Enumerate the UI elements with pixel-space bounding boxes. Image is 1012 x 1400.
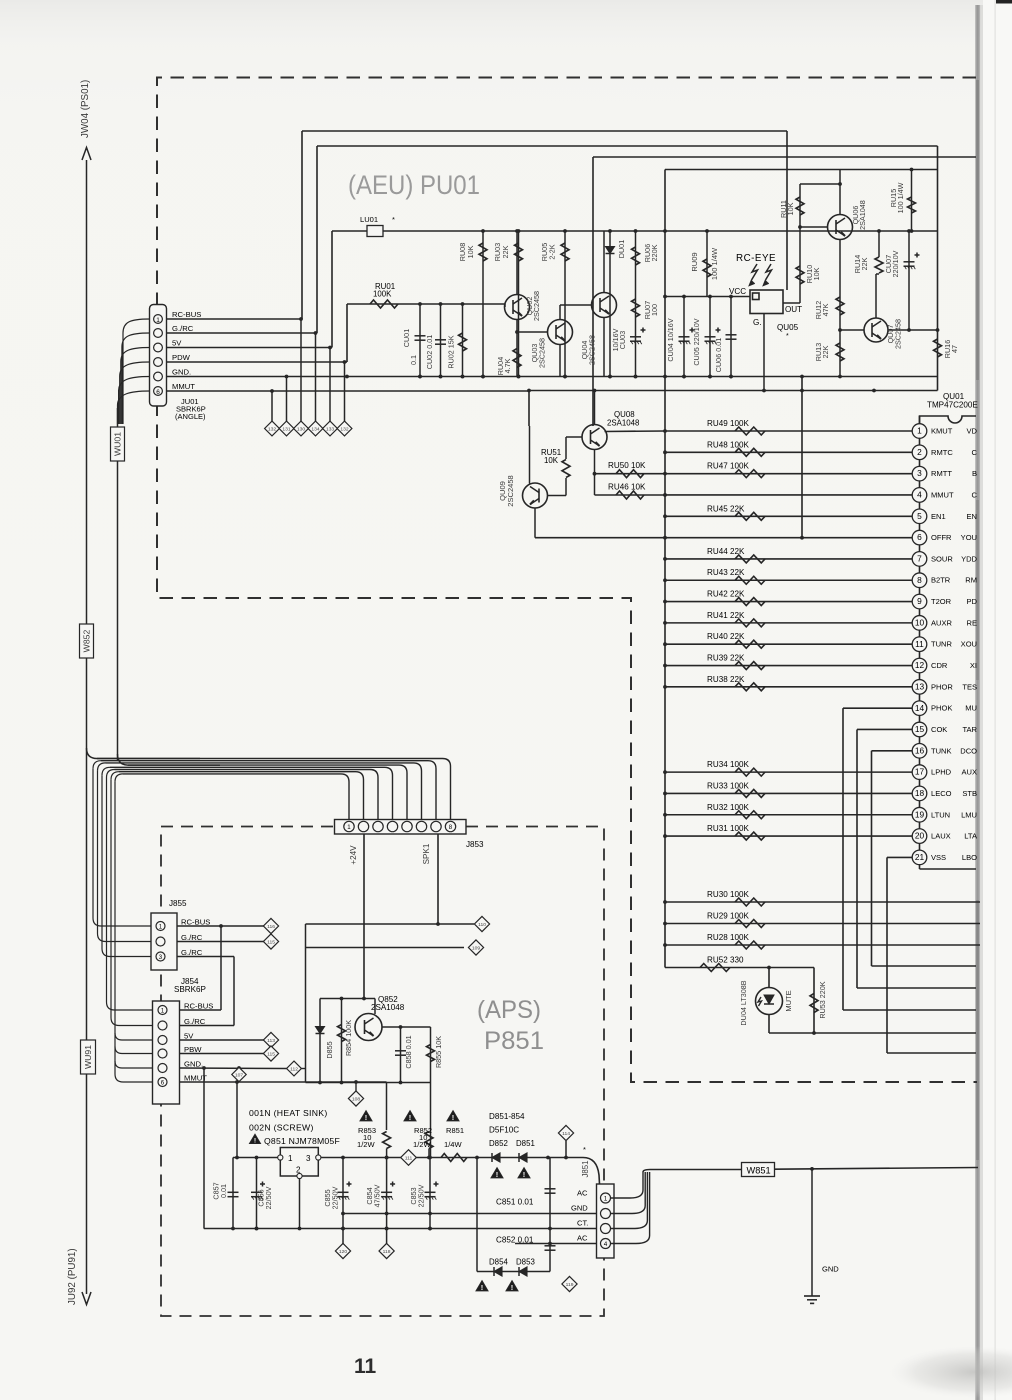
svg-text:RU38 22K: RU38 22K — [707, 675, 745, 684]
svg-text:CU05 220/10V: CU05 220/10V — [692, 318, 701, 365]
svg-text:R851: R851 — [446, 1126, 464, 1135]
svg-text:RU49 100K: RU49 100K — [707, 419, 749, 428]
svg-text:EN: EN — [967, 512, 977, 521]
svg-text:134: 134 — [311, 426, 319, 432]
svg-text:EN1: EN1 — [931, 512, 946, 521]
svg-text:4.7K: 4.7K — [503, 358, 512, 373]
svg-text:RU47 100K: RU47 100K — [707, 462, 749, 471]
svg-text:!: ! — [481, 1283, 483, 1292]
svg-text:3: 3 — [306, 1154, 311, 1163]
svg-text:J855: J855 — [169, 899, 187, 908]
svg-text:J853: J853 — [466, 840, 484, 849]
svg-text:14: 14 — [915, 703, 925, 713]
svg-text:20: 20 — [915, 831, 925, 841]
svg-text:PHOR: PHOR — [931, 682, 953, 691]
svg-text:!: ! — [496, 1170, 498, 1179]
svg-text:21: 21 — [915, 852, 925, 862]
svg-text:RU29 100K: RU29 100K — [707, 912, 749, 921]
svg-text:LECO: LECO — [931, 789, 952, 798]
svg-text:G.: G. — [753, 318, 762, 327]
svg-text:VCC: VCC — [729, 287, 746, 296]
svg-text:(ANGLE): (ANGLE) — [175, 412, 206, 421]
svg-text:120: 120 — [339, 1249, 347, 1255]
svg-text:!: ! — [409, 1113, 411, 1122]
svg-text:5: 5 — [917, 511, 922, 521]
svg-text:RC-EYE: RC-EYE — [736, 253, 776, 264]
svg-text:1/2W: 1/2W — [413, 1140, 431, 1149]
svg-text:18: 18 — [915, 788, 925, 798]
svg-text:GND: GND — [822, 1265, 839, 1274]
svg-text:47: 47 — [950, 345, 959, 353]
svg-text:4: 4 — [917, 490, 922, 500]
svg-text:CDR: CDR — [931, 661, 948, 670]
svg-text:112: 112 — [290, 1066, 298, 1072]
svg-text:COK: COK — [931, 725, 947, 734]
svg-text:RU50 10K: RU50 10K — [608, 461, 646, 470]
svg-text:002N (SCREW): 002N (SCREW) — [249, 1123, 314, 1133]
svg-text:LMU: LMU — [961, 810, 977, 819]
svg-text:TES: TES — [962, 682, 977, 691]
svg-text:DU04 LT308B: DU04 LT308B — [739, 980, 748, 1025]
svg-text:6: 6 — [156, 389, 160, 396]
svg-text:1/4W: 1/4W — [444, 1140, 462, 1149]
svg-text:2SC2458: 2SC2458 — [538, 338, 547, 368]
svg-text:SBRK6P: SBRK6P — [174, 985, 206, 994]
svg-text:RC-BUS: RC-BUS — [184, 1002, 213, 1011]
svg-text:YDD: YDD — [961, 554, 977, 563]
svg-text:1/2W: 1/2W — [357, 1140, 375, 1149]
svg-text:113: 113 — [267, 1038, 275, 1044]
svg-text:TUNK: TUNK — [931, 746, 952, 755]
svg-text:AC: AC — [577, 1189, 588, 1198]
svg-text:B: B — [972, 469, 977, 478]
svg-text:1: 1 — [917, 426, 922, 436]
svg-text:XOU: XOU — [961, 640, 977, 649]
svg-text:001N (HEAT SINK): 001N (HEAT SINK) — [249, 1108, 328, 1118]
svg-text:2SA1048: 2SA1048 — [371, 1003, 405, 1012]
svg-text:RU45 22K: RU45 22K — [707, 504, 745, 513]
svg-text:GND: GND — [571, 1204, 588, 1213]
svg-text:107: 107 — [235, 1072, 243, 1078]
svg-text:G./RC: G./RC — [184, 1017, 206, 1026]
svg-text:Q851 NJM78M05F: Q851 NJM78M05F — [264, 1136, 340, 1146]
svg-text:6: 6 — [917, 532, 922, 542]
svg-text:5V: 5V — [172, 339, 182, 348]
svg-text:WU91: WU91 — [83, 1045, 93, 1069]
svg-text:TMP47C200E: TMP47C200E — [927, 401, 978, 410]
svg-text:*: * — [583, 1145, 586, 1154]
svg-text:LU01: LU01 — [360, 215, 378, 224]
svg-text:RU41 22K: RU41 22K — [707, 611, 745, 620]
svg-text:DCO: DCO — [960, 746, 977, 755]
svg-text:MUTE: MUTE — [784, 990, 793, 1011]
svg-text:22/50V: 22/50V — [417, 1184, 426, 1207]
svg-text:2: 2 — [296, 1166, 301, 1175]
svg-text:15: 15 — [915, 724, 925, 734]
svg-text:116: 116 — [267, 924, 275, 930]
svg-text:JW04 (PS01): JW04 (PS01) — [80, 80, 91, 138]
svg-text:119: 119 — [566, 1282, 574, 1288]
svg-text:D854: D854 — [489, 1258, 508, 1267]
svg-text:GND.: GND. — [184, 1060, 203, 1069]
svg-text:2SC2458: 2SC2458 — [532, 291, 541, 321]
svg-text:2: 2 — [917, 447, 922, 457]
svg-text:109: 109 — [472, 945, 480, 951]
svg-text:RC-BUS: RC-BUS — [181, 918, 210, 927]
svg-text:132: 132 — [340, 426, 348, 432]
svg-text:133: 133 — [326, 426, 334, 432]
svg-text:R855 10K: R855 10K — [434, 1036, 443, 1068]
svg-text:*: * — [392, 215, 395, 224]
svg-text:0.1: 0.1 — [409, 355, 418, 365]
svg-text:*: * — [786, 333, 789, 340]
svg-text:RU30 100K: RU30 100K — [707, 890, 749, 899]
svg-text:VSS: VSS — [931, 853, 946, 862]
svg-text:22K: 22K — [860, 257, 869, 270]
svg-text:CT.: CT. — [577, 1219, 588, 1228]
svg-text:22K: 22K — [821, 345, 830, 358]
svg-text:JU92 (PU91): JU92 (PU91) — [67, 1248, 78, 1305]
svg-text:W851: W851 — [747, 1166, 771, 1176]
svg-text:!: ! — [254, 1138, 256, 1145]
svg-text:RU46 10K: RU46 10K — [608, 483, 646, 492]
svg-text:GND.: GND. — [172, 368, 191, 377]
svg-text:111: 111 — [405, 1155, 413, 1161]
svg-text:AC: AC — [577, 1234, 588, 1243]
svg-text:CU01: CU01 — [402, 329, 411, 347]
svg-text:RU40 22K: RU40 22K — [707, 632, 745, 641]
svg-text:C858 0.01: C858 0.01 — [404, 1035, 413, 1068]
svg-text:12: 12 — [915, 660, 925, 670]
svg-text:RU48 100K: RU48 100K — [707, 440, 749, 449]
svg-text:C851 0.01: C851 0.01 — [496, 1198, 534, 1207]
svg-text:RE: RE — [967, 618, 977, 627]
svg-text:10K: 10K — [786, 202, 795, 215]
svg-text:LAUX: LAUX — [931, 832, 951, 841]
svg-text:VD: VD — [967, 427, 978, 436]
svg-text:47K: 47K — [821, 303, 830, 316]
svg-text:P851: P851 — [484, 1027, 544, 1055]
svg-text:100K: 100K — [373, 290, 392, 299]
svg-text:RU28 100K: RU28 100K — [707, 933, 749, 942]
svg-text:RU42 22K: RU42 22K — [707, 590, 745, 599]
svg-text:YOU: YOU — [961, 533, 977, 542]
svg-text:100 1/4W: 100 1/4W — [710, 247, 719, 280]
svg-text:114: 114 — [562, 1131, 570, 1137]
svg-text:9: 9 — [917, 596, 922, 606]
svg-text:22/50V: 22/50V — [331, 1186, 340, 1209]
svg-text:J851: J851 — [581, 1160, 590, 1177]
svg-text:10K: 10K — [812, 267, 821, 280]
svg-text:PDW: PDW — [172, 353, 191, 362]
svg-text:RU34 100K: RU34 100K — [707, 760, 749, 769]
svg-text:TUNR: TUNR — [931, 640, 952, 649]
svg-text:RU31 100K: RU31 100K — [707, 824, 749, 833]
svg-text:1: 1 — [156, 317, 160, 324]
svg-text:4: 4 — [604, 1241, 608, 1248]
svg-text:OUT: OUT — [785, 305, 802, 314]
svg-text:100 1/4W: 100 1/4W — [896, 182, 905, 213]
svg-text:RU32 100K: RU32 100K — [707, 803, 749, 812]
svg-text:LTA: LTA — [964, 832, 978, 841]
svg-text:MMUT: MMUT — [931, 490, 954, 499]
svg-text:G./RC: G./RC — [181, 948, 203, 957]
svg-text:+24V: +24V — [349, 845, 358, 865]
svg-text:47/50V: 47/50V — [373, 1184, 382, 1207]
svg-text:WU01: WU01 — [113, 432, 123, 456]
svg-text:220K: 220K — [650, 244, 659, 261]
svg-text:22/50V: 22/50V — [264, 1186, 273, 1209]
svg-text:R854 100K: R854 100K — [344, 1020, 353, 1056]
svg-text:D852: D852 — [489, 1139, 508, 1148]
svg-text:RMTC: RMTC — [931, 448, 953, 457]
svg-text:2SA1048: 2SA1048 — [858, 200, 867, 230]
svg-text:2SC2458: 2SC2458 — [588, 335, 597, 365]
svg-text:MU: MU — [965, 704, 977, 713]
svg-text:131: 131 — [282, 426, 290, 432]
svg-text:7: 7 — [917, 554, 922, 564]
svg-text:OFFR: OFFR — [931, 533, 952, 542]
svg-text:RU43 22K: RU43 22K — [707, 568, 745, 577]
svg-text:LTUN: LTUN — [931, 810, 950, 819]
svg-text:W852: W852 — [82, 630, 92, 653]
svg-text:C: C — [972, 448, 978, 457]
svg-text:11: 11 — [915, 639, 924, 649]
svg-text:2SC2458: 2SC2458 — [506, 475, 515, 506]
svg-text:CU04 10/16V: CU04 10/16V — [666, 318, 675, 361]
svg-text:22K: 22K — [501, 245, 510, 258]
svg-text:G./RC: G./RC — [181, 933, 203, 942]
svg-text:T2OR: T2OR — [931, 597, 952, 606]
svg-text:SOUR: SOUR — [931, 554, 953, 563]
svg-text:RU33 100K: RU33 100K — [707, 781, 749, 790]
svg-text:QU05: QU05 — [777, 323, 799, 332]
svg-text:3: 3 — [917, 468, 922, 478]
svg-text:D5F10C: D5F10C — [489, 1126, 519, 1135]
svg-text:1: 1 — [288, 1154, 293, 1163]
svg-text:10K: 10K — [544, 456, 559, 465]
svg-text:PBW: PBW — [184, 1045, 202, 1054]
svg-text:!: ! — [523, 1170, 525, 1179]
svg-text:RU52 330: RU52 330 — [707, 956, 744, 965]
svg-text:TAR: TAR — [962, 725, 977, 734]
svg-text:115: 115 — [267, 1051, 275, 1057]
svg-text:RMTT: RMTT — [931, 469, 952, 478]
svg-text:0.01: 0.01 — [219, 1184, 228, 1198]
svg-text:LBO: LBO — [962, 853, 977, 862]
svg-text:132: 132 — [268, 426, 276, 432]
svg-text:RU44 22K: RU44 22K — [707, 547, 745, 556]
svg-text:17: 17 — [915, 767, 925, 777]
svg-text:!: ! — [511, 1283, 513, 1292]
svg-text:MMUT: MMUT — [172, 382, 195, 391]
svg-text:PHOK: PHOK — [931, 704, 952, 713]
svg-text:220/10V: 220/10V — [891, 250, 900, 277]
svg-text:115: 115 — [267, 939, 275, 945]
svg-text:19: 19 — [915, 809, 925, 819]
svg-text:G./RC: G./RC — [172, 324, 194, 333]
svg-text:5V: 5V — [184, 1032, 194, 1041]
svg-text:XI: XI — [970, 661, 977, 670]
svg-text:10/16V: 10/16V — [611, 328, 620, 351]
svg-text:RU39 22K: RU39 22K — [707, 654, 745, 663]
svg-text:D851: D851 — [516, 1139, 535, 1148]
svg-text:108: 108 — [352, 1096, 360, 1102]
svg-text:(AEU) PU01: (AEU) PU01 — [348, 170, 480, 200]
svg-text:16: 16 — [915, 745, 925, 755]
svg-text:10: 10 — [915, 617, 925, 627]
svg-text:2SA1048: 2SA1048 — [607, 419, 640, 428]
svg-text:RU02 15K: RU02 15K — [447, 335, 456, 368]
svg-text:PD: PD — [967, 597, 978, 606]
svg-text:130: 130 — [297, 426, 305, 432]
svg-text:CU06 0.01: CU06 0.01 — [714, 338, 723, 372]
svg-text:AUX: AUX — [962, 768, 978, 777]
svg-text:13: 13 — [915, 681, 925, 691]
svg-text:RC-BUS: RC-BUS — [172, 310, 201, 319]
svg-text:RM: RM — [965, 576, 977, 585]
svg-text:D853: D853 — [516, 1258, 535, 1267]
svg-text:10K: 10K — [466, 245, 475, 258]
svg-text:DU01: DU01 — [617, 240, 626, 258]
svg-text:2-2K: 2-2K — [548, 244, 557, 259]
svg-text:110: 110 — [478, 922, 486, 928]
svg-text:B2TR: B2TR — [931, 576, 951, 585]
svg-text:D855: D855 — [325, 1041, 334, 1058]
svg-text:AUXR: AUXR — [931, 618, 952, 627]
svg-text:RU09: RU09 — [690, 252, 699, 271]
svg-text:!: ! — [365, 1113, 367, 1122]
svg-text:(APS): (APS) — [477, 996, 541, 1024]
svg-text:2SC2458: 2SC2458 — [894, 319, 903, 349]
svg-text:118: 118 — [383, 1249, 391, 1255]
svg-text:D851-854: D851-854 — [489, 1112, 525, 1121]
svg-text:!: ! — [452, 1113, 454, 1122]
svg-text:CU02 0.01: CU02 0.01 — [425, 335, 434, 369]
svg-text:LPHD: LPHD — [931, 768, 952, 777]
svg-text:1: 1 — [604, 1196, 608, 1203]
svg-text:100: 100 — [650, 304, 659, 316]
svg-text:KMUT: KMUT — [931, 427, 953, 436]
svg-text:C: C — [972, 490, 978, 499]
svg-text:SPK1: SPK1 — [422, 843, 431, 864]
svg-text:11: 11 — [354, 1355, 377, 1378]
svg-text:RU53 220K: RU53 220K — [818, 981, 827, 1018]
svg-text:STB: STB — [962, 789, 977, 798]
svg-text:8: 8 — [917, 575, 922, 585]
